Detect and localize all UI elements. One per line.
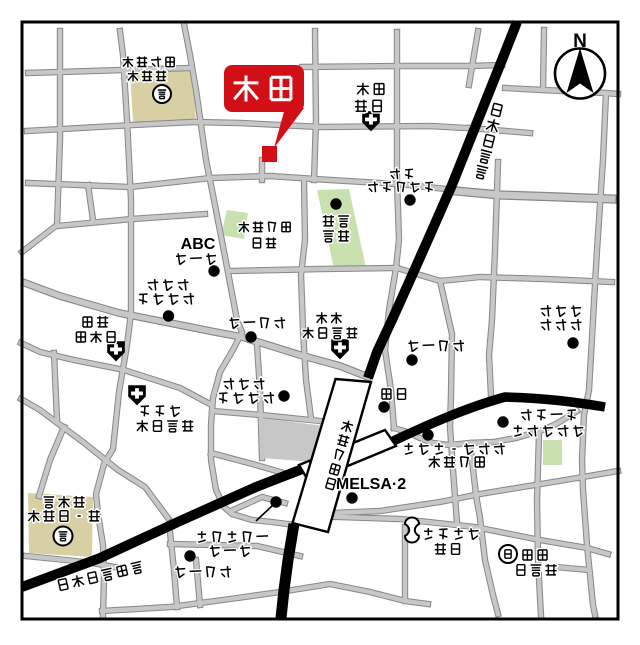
svg-text:ABC: ABC: [181, 236, 216, 253]
svg-text:MELSA·2: MELSA·2: [336, 476, 406, 493]
svg-text:N: N: [573, 31, 587, 52]
